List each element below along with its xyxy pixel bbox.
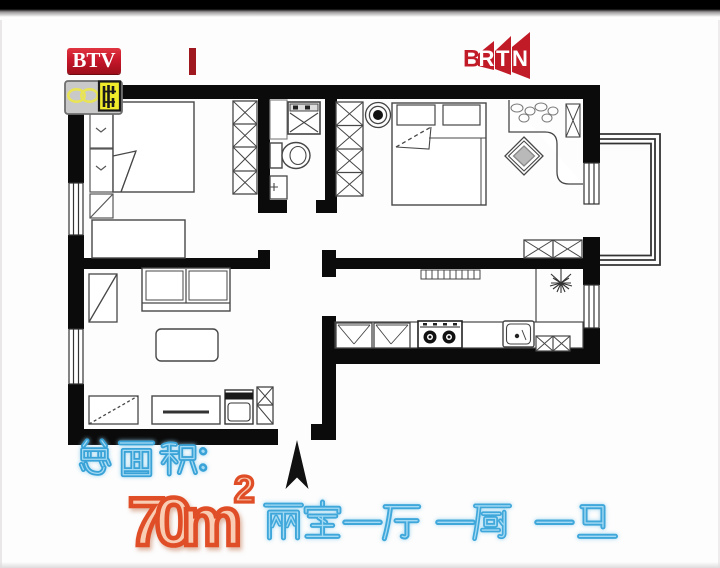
svg-text:N: N bbox=[512, 46, 528, 71]
svg-text:2: 2 bbox=[234, 469, 255, 510]
svg-text:70m: 70m bbox=[128, 484, 241, 560]
svg-text:T: T bbox=[496, 46, 510, 71]
svg-text:R: R bbox=[479, 46, 495, 71]
